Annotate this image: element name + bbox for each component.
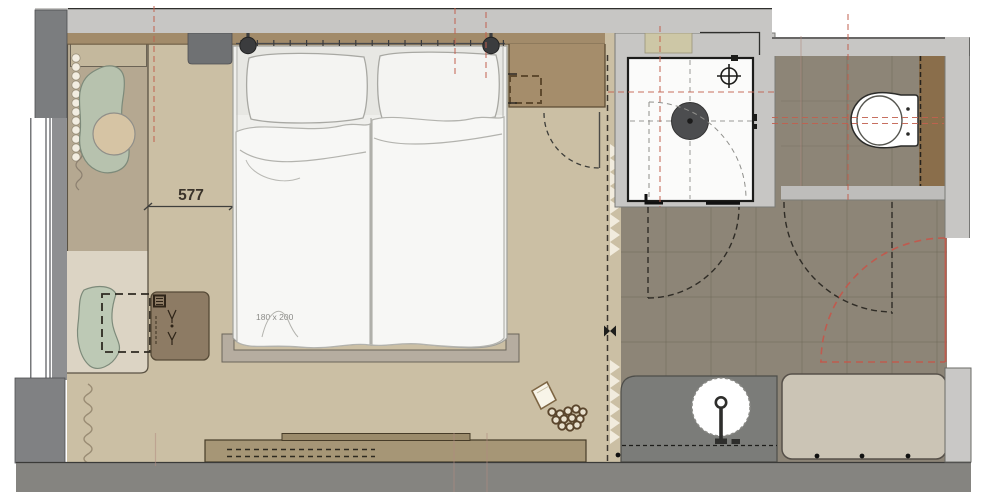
svg-text:577: 577: [178, 187, 204, 204]
